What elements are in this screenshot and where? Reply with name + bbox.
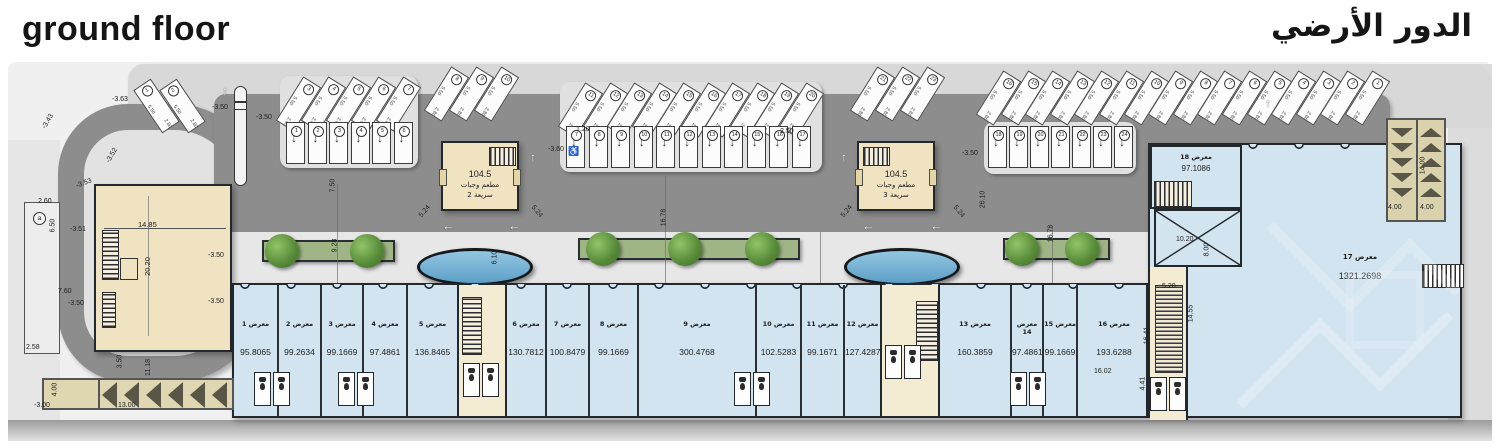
parking-stall: 21↓ bbox=[1051, 126, 1070, 168]
water-feature bbox=[417, 248, 533, 286]
unit-label: معرض 7 bbox=[547, 320, 588, 328]
stall-width-dim: 2.80 bbox=[1277, 110, 1287, 121]
grid-marker: a bbox=[33, 212, 46, 225]
unit-area: 100.8479 bbox=[547, 347, 588, 357]
restaurant-3-building: 104.5 مطعم وجبات سريعة 3 bbox=[857, 141, 935, 211]
stall-number: 4 bbox=[1296, 76, 1311, 91]
void-cross-icon bbox=[1156, 211, 1240, 265]
stall-width-dim: 2.80 bbox=[1080, 110, 1090, 121]
stall-number: 9 bbox=[474, 72, 489, 87]
stall-number: 6 bbox=[1247, 76, 1262, 91]
wc-room bbox=[463, 363, 480, 397]
stall-number: 11 bbox=[583, 88, 598, 103]
direction-arrow-icon: ← bbox=[442, 218, 455, 233]
stall-width-dim: 2.80 bbox=[856, 106, 866, 117]
dimension-line bbox=[337, 184, 338, 283]
direction-arrow-icon: ↑ bbox=[530, 150, 536, 164]
parking-stall: 13↓ bbox=[702, 126, 721, 168]
stall-number: 15 bbox=[681, 88, 696, 103]
direction-arrow-icon: ← bbox=[862, 218, 875, 233]
stall-depth-dim: 5.50 bbox=[1111, 89, 1121, 100]
parking-stall: 10↓ bbox=[634, 126, 653, 168]
handicap-parking-icon: ♿ bbox=[568, 146, 579, 157]
dimension: -3.51 bbox=[70, 226, 86, 233]
wc-pair bbox=[734, 372, 772, 408]
stall-width-dim: 2.80 bbox=[881, 106, 891, 117]
stall-width-dim: 2.80 bbox=[430, 106, 440, 117]
unit-6: معرض 6130.7812 bbox=[507, 285, 547, 416]
dimension: 14.55 bbox=[1187, 305, 1194, 323]
stall-number: 13 bbox=[632, 88, 647, 103]
dimension: 16.78 bbox=[1047, 225, 1054, 243]
stall-width-dim: 2.80 bbox=[480, 106, 490, 117]
direction-arrow-icon: ↑ bbox=[1265, 96, 1271, 110]
stall-arrow-icon: ↓ bbox=[1077, 135, 1083, 149]
stairs-icon bbox=[489, 147, 516, 166]
unit-area: 99.1671 bbox=[802, 347, 843, 357]
stall-arrow-icon: ↓ bbox=[729, 135, 735, 149]
wc-room bbox=[1029, 372, 1046, 406]
parking-stall: 15↓ bbox=[747, 126, 766, 168]
stall-arrow-icon: ↓ bbox=[313, 131, 319, 145]
stall-depth-dim: 5.50 bbox=[570, 101, 580, 112]
dimension: -3.50 bbox=[68, 300, 84, 307]
parking-stall: 23↓ bbox=[1093, 126, 1112, 168]
parking-stall: 3↓ bbox=[329, 122, 348, 164]
stall-number: 5 bbox=[351, 82, 366, 97]
parking-stall: 18↓ bbox=[988, 126, 1007, 168]
stall-number: 5 bbox=[1272, 76, 1287, 91]
dimension: 10.20 bbox=[1176, 236, 1194, 243]
stall-depth-dim: 5.50 bbox=[1209, 89, 1219, 100]
dimension: 2.60 bbox=[38, 198, 52, 205]
unit-label: معرض 9 bbox=[639, 320, 755, 328]
stall-arrow-icon: ↓ bbox=[1014, 135, 1020, 149]
dimension-line bbox=[820, 232, 821, 283]
stall-number: 9 bbox=[1173, 76, 1188, 91]
stall-width-dim: 2.80 bbox=[982, 110, 992, 121]
lane-divider-island bbox=[234, 86, 247, 186]
tree-icon bbox=[745, 232, 779, 266]
wc-pair bbox=[254, 372, 292, 408]
wc-room bbox=[1010, 372, 1027, 406]
stall-number: 7 bbox=[1222, 76, 1237, 91]
unit-label: معرض 12 bbox=[845, 320, 880, 328]
stall-number: 11 bbox=[1124, 76, 1139, 91]
dimension: 3.50 bbox=[116, 355, 123, 369]
stall-depth-dim: 5.50 bbox=[887, 85, 897, 96]
restaurant-area: 104.5 bbox=[443, 169, 517, 179]
dimension: 11.18 bbox=[145, 359, 152, 376]
dimension: 2.50 bbox=[780, 128, 794, 135]
direction-arrow-icon: ↑ bbox=[841, 150, 847, 164]
unit-area: 97.4861 bbox=[364, 347, 406, 357]
stall-number: 1 bbox=[1370, 76, 1385, 91]
stall-depth-dim: 5.50 bbox=[912, 85, 922, 96]
stall-arrow-icon: ↓ bbox=[1056, 135, 1062, 149]
unit-area: 99.2634 bbox=[279, 347, 320, 357]
stall-number: 15 bbox=[1026, 76, 1041, 91]
stall-width-dim: 2.80 bbox=[906, 106, 916, 117]
stall-number: 7 bbox=[401, 82, 416, 97]
restaurant-area: 104.5 bbox=[859, 169, 933, 179]
stair-core-1 bbox=[457, 285, 507, 416]
wc-room bbox=[338, 372, 355, 406]
stall-number: 4 bbox=[326, 82, 341, 97]
parking-stall: 17↓ bbox=[792, 126, 811, 168]
unit-18: معرض 18 97.1086 bbox=[1150, 145, 1242, 209]
dimension: 4.00 bbox=[51, 383, 58, 397]
stair-landing bbox=[120, 258, 138, 280]
parking-stall: 14↓ bbox=[724, 126, 743, 168]
direction-arrow-icon: ← bbox=[508, 218, 521, 233]
stall-number: 2 bbox=[166, 83, 181, 98]
dimension: 6.50 bbox=[49, 219, 56, 233]
stall-depth-dim: 5.50 bbox=[668, 101, 678, 112]
dimension: 8.00 bbox=[1203, 243, 1210, 257]
stall-width-dim: 2.80 bbox=[1105, 110, 1115, 121]
stall-depth-dim: 5.50 bbox=[717, 101, 727, 112]
stall-arrow-icon: ↓ bbox=[639, 135, 645, 149]
parking-stall: 19↓ bbox=[1009, 126, 1028, 168]
page-title-english: ground floor bbox=[22, 10, 230, 49]
parking-stall: 8↓ bbox=[589, 126, 608, 168]
stall-arrow-icon: ↓ bbox=[377, 131, 383, 145]
stall-number: 12 bbox=[1099, 76, 1114, 91]
unit-label: معرض 14 bbox=[1012, 320, 1042, 336]
dimension: 16.41 bbox=[1143, 327, 1150, 345]
restaurant-label: سريعة 3 bbox=[859, 191, 933, 199]
unit-label: معرض 4 bbox=[364, 320, 406, 328]
stall-number: 22 bbox=[900, 72, 915, 87]
dimension: 9.28 bbox=[331, 239, 338, 253]
unit-7: معرض 7100.8479 bbox=[547, 285, 590, 416]
stall-depth-dim: 5.50 bbox=[1160, 89, 1170, 100]
stairs-icon bbox=[462, 297, 482, 355]
stall-number: 1 bbox=[140, 83, 155, 98]
unit-area: 99.1669 bbox=[590, 347, 637, 357]
unit-area: 160.3859 bbox=[940, 347, 1010, 357]
parking-stall: 2↓ bbox=[308, 122, 327, 164]
dimension: 5.20 bbox=[1162, 283, 1176, 290]
stall-depth-dim: 5.50 bbox=[1234, 89, 1244, 100]
stall-depth-dim: 5.50 bbox=[1037, 89, 1047, 100]
stall-depth-dim: 5.50 bbox=[1086, 89, 1096, 100]
parking-stall: 4↓ bbox=[351, 122, 370, 164]
void-shaft bbox=[1154, 209, 1242, 267]
stall-depth-dim: 5.50 bbox=[1283, 89, 1293, 100]
left-building bbox=[94, 184, 232, 352]
stall-number: 16 bbox=[706, 88, 721, 103]
unit-label: معرض 1 bbox=[234, 320, 277, 328]
stall-arrow-icon: ↓ bbox=[1098, 135, 1104, 149]
restaurant-label: سريعة 2 bbox=[443, 191, 517, 199]
parking-stall: 5↓ bbox=[372, 122, 391, 164]
restaurant-2-building: 104.5 مطعم وجبات سريعة 2 bbox=[441, 141, 519, 211]
stall-arrow-icon: ↓ bbox=[291, 131, 297, 145]
stall-width-dim: 2.80 bbox=[1252, 110, 1262, 121]
stall-width-dim: 2.80 bbox=[1056, 110, 1066, 121]
stall-depth-dim: 5.50 bbox=[1357, 89, 1367, 100]
unit-15: معرض 1599.1669 bbox=[1044, 285, 1078, 416]
wc-room bbox=[885, 345, 902, 379]
tree-icon bbox=[586, 232, 620, 266]
unit-11: معرض 1199.1671 bbox=[802, 285, 845, 416]
stall-number: 3 bbox=[301, 82, 316, 97]
ramp-divider bbox=[98, 380, 100, 408]
stall-width-dim: 2.80 bbox=[1351, 110, 1361, 121]
stall-number: 20 bbox=[804, 88, 819, 103]
escalator-icon bbox=[1155, 285, 1183, 373]
restaurant-label: مطعم وجبات bbox=[859, 181, 933, 189]
unit-area: 99.1669 bbox=[1044, 347, 1076, 357]
stall-arrow-icon: ↓ bbox=[616, 135, 622, 149]
dimension: 7.60 bbox=[58, 288, 72, 295]
tree-icon bbox=[265, 234, 299, 268]
stall-arrow-icon: ↓ bbox=[594, 135, 600, 149]
stall-depth-dim: 5.50 bbox=[461, 85, 471, 96]
unit-label: معرض 10 bbox=[757, 320, 800, 328]
stall-arrow-icon: ↓ bbox=[399, 131, 405, 145]
stall-number: 2 bbox=[1345, 76, 1360, 91]
dimension: 16.78 bbox=[660, 209, 667, 227]
stall-width-dim: 2.80 bbox=[1302, 110, 1312, 121]
unit-label: معرض 13 bbox=[940, 320, 1010, 328]
direction-arrow-icon: ↑ bbox=[222, 84, 228, 98]
unit-label: معرض 11 bbox=[802, 320, 843, 328]
dimension: -3.00 bbox=[34, 402, 50, 409]
dimension-line bbox=[104, 228, 226, 229]
parking-stall: 9↓ bbox=[611, 126, 630, 168]
stall-number: 18 bbox=[755, 88, 770, 103]
stall-depth-dim: 5.50 bbox=[486, 85, 496, 96]
stall-number: 21 bbox=[875, 72, 890, 87]
stall-arrow-icon: ↓ bbox=[661, 135, 667, 149]
stall-arrow-icon: ↓ bbox=[752, 135, 758, 149]
wc-pair bbox=[463, 363, 501, 399]
stall-number: 14 bbox=[1050, 76, 1065, 91]
dimension: -3.60 bbox=[548, 146, 564, 153]
stall-arrow-icon: ↓ bbox=[707, 135, 713, 149]
unit-area: 193.6288 bbox=[1078, 347, 1150, 357]
water-feature bbox=[844, 248, 960, 286]
parking-stall: 24↓ bbox=[1114, 126, 1133, 168]
wc-room bbox=[357, 372, 374, 406]
dimension-line bbox=[665, 176, 666, 283]
dimension: 14.00 bbox=[1419, 157, 1426, 175]
unit-area: 99.1669 bbox=[322, 347, 362, 357]
stall-width-dim: 2.80 bbox=[1031, 110, 1041, 121]
unit-area: 97.4861 bbox=[1012, 347, 1042, 357]
stall-arrow-icon: ↓ bbox=[1119, 135, 1125, 149]
wc-room bbox=[482, 363, 499, 397]
wc-room bbox=[753, 372, 770, 406]
dimension: 26.10 bbox=[979, 191, 986, 209]
stall-number: 13 bbox=[1075, 76, 1090, 91]
stall-depth-dim: 5.50 bbox=[1332, 89, 1342, 100]
unit-8: معرض 899.1669 bbox=[590, 285, 639, 416]
bottom-road-band bbox=[8, 420, 1492, 441]
dimension: 20.20 bbox=[143, 257, 152, 276]
stall-width-dim: 2.80 bbox=[1129, 110, 1139, 121]
stall-number: 14 bbox=[657, 88, 672, 103]
wc-pair bbox=[1010, 372, 1048, 408]
unit-label: معرض 8 bbox=[590, 320, 637, 328]
dimension: 4.41 bbox=[1139, 377, 1146, 391]
stall-width-dim: 2.80 bbox=[1179, 110, 1189, 121]
dimension: 1.20 bbox=[576, 126, 590, 133]
stall-depth-dim: 5.50 bbox=[363, 95, 373, 106]
stall-number: 19 bbox=[779, 88, 794, 103]
unit-label: معرض 3 bbox=[322, 320, 362, 328]
unit-area: 136.8465 bbox=[408, 347, 457, 357]
stall-depth-dim: 5.50 bbox=[288, 95, 298, 106]
stall-number: 6 bbox=[376, 82, 391, 97]
stall-arrow-icon: ↓ bbox=[356, 131, 362, 145]
restaurant-label: مطعم وجبات bbox=[443, 181, 517, 189]
unit-area: 95.8065 bbox=[234, 347, 277, 357]
stall-width-dim: 2.80 bbox=[1154, 110, 1164, 121]
stall-width-dim: 2.80 bbox=[455, 106, 465, 117]
vehicle-ramp-left bbox=[42, 378, 234, 410]
stall-number: 10 bbox=[1149, 76, 1164, 91]
wc-room bbox=[734, 372, 751, 406]
tree-icon bbox=[668, 232, 702, 266]
stall-arrow-icon: ↓ bbox=[993, 135, 999, 149]
dimension: 6.10 bbox=[491, 251, 498, 265]
wc-room bbox=[273, 372, 290, 406]
dimension: 13.00 bbox=[118, 402, 136, 409]
unit-label: معرض 15 bbox=[1044, 320, 1076, 328]
dimension: 14.85 bbox=[138, 220, 157, 229]
wc-room bbox=[904, 345, 921, 379]
stall-depth-dim: 5.50 bbox=[338, 95, 348, 106]
stall-number: 10 bbox=[499, 72, 514, 87]
dimension: 2.58 bbox=[26, 344, 40, 351]
parking-stall: 1↓ bbox=[286, 122, 305, 164]
unit-13: معرض 13160.3859 bbox=[940, 285, 1012, 416]
stall-arrow-icon: ↓ bbox=[1035, 135, 1041, 149]
wc-room bbox=[254, 372, 271, 406]
stall-arrow-icon: ↓ bbox=[797, 135, 803, 149]
dimension: 16.02 bbox=[1094, 368, 1112, 375]
wc-room bbox=[1150, 377, 1167, 411]
dimension: -3.50 bbox=[212, 104, 228, 111]
watermark bbox=[1230, 215, 1460, 415]
dimension: -3.50 bbox=[256, 114, 272, 121]
stall-width-dim: 2.80 bbox=[1203, 110, 1213, 121]
parking-stall: 6↓ bbox=[394, 122, 413, 164]
stairs-icon bbox=[102, 292, 116, 328]
wc-pair bbox=[1150, 377, 1188, 413]
wc-pair bbox=[338, 372, 376, 408]
unit-area: 300.4768 bbox=[639, 347, 755, 357]
stairs-icon bbox=[102, 230, 119, 280]
parking-stall: 12↓ bbox=[679, 126, 698, 168]
stall-depth-dim: 5.50 bbox=[766, 101, 776, 112]
tree-icon bbox=[1065, 232, 1099, 266]
unit-area: 102.5283 bbox=[757, 347, 800, 357]
dimension: -3.50 bbox=[208, 252, 224, 259]
dimension: -3.50 bbox=[208, 298, 224, 305]
dimension: 4.00 bbox=[1420, 204, 1434, 211]
parking-stall: 22↓ bbox=[1072, 126, 1091, 168]
stairs-icon bbox=[863, 147, 890, 166]
stall-arrow-icon: ↓ bbox=[334, 131, 340, 145]
stall-arrow-icon: ↓ bbox=[774, 135, 780, 149]
stall-number: 8 bbox=[1198, 76, 1213, 91]
stall-depth-dim: 5.50 bbox=[388, 95, 398, 106]
unit-area: 127.4287 bbox=[845, 347, 880, 357]
stall-width-dim: 2.80 bbox=[1326, 110, 1336, 121]
wc-room bbox=[1169, 377, 1186, 411]
dimension: 7.50 bbox=[329, 179, 336, 193]
stall-width-dim: 2.80 bbox=[1006, 110, 1016, 121]
unit-area: 97.1086 bbox=[1152, 164, 1240, 173]
stall-number: 16 bbox=[1001, 76, 1016, 91]
stall-number: 23 bbox=[925, 72, 940, 87]
parking-stall: 20↓ bbox=[1030, 126, 1049, 168]
tree-icon bbox=[350, 234, 384, 268]
page-title-arabic: الدور الأرضي bbox=[1271, 8, 1472, 44]
stall-number: 3 bbox=[1321, 76, 1336, 91]
unit-label: معرض 5 bbox=[408, 320, 457, 328]
unit-label: معرض 6 bbox=[507, 320, 545, 328]
stall-arrow-icon: ↓ bbox=[684, 135, 690, 149]
dimension: -3.50 bbox=[962, 150, 978, 157]
unit-12: معرض 12127.4287 bbox=[845, 285, 880, 416]
stair-core-2 bbox=[880, 285, 940, 416]
stall-depth-dim: 5.50 bbox=[862, 85, 872, 96]
stall-number: 8 bbox=[449, 72, 464, 87]
unit-label: معرض 16 bbox=[1078, 320, 1150, 328]
unit-16: معرض 16193.6288 bbox=[1078, 285, 1150, 416]
stall-depth-dim: 5.50 bbox=[619, 101, 629, 112]
parking-stall: 11↓ bbox=[656, 126, 675, 168]
wc-pair bbox=[885, 345, 923, 381]
stall-depth-dim: 5.50 bbox=[988, 89, 998, 100]
stall-depth-dim: 5.50 bbox=[436, 85, 446, 96]
floor-plan-canvas: ground floor الدور الأرضي 15.502.8025.50… bbox=[0, 0, 1500, 448]
dimension: -3.63 bbox=[112, 96, 128, 103]
stall-number: 17 bbox=[730, 88, 745, 103]
stall-depth-dim: 5.50 bbox=[313, 95, 323, 106]
stall-number: 12 bbox=[608, 88, 623, 103]
unit-label: معرض 18 bbox=[1152, 153, 1240, 161]
stall-width-dim: 2.80 bbox=[1228, 110, 1238, 121]
unit-area: 130.7812 bbox=[507, 347, 545, 357]
stairs-icon bbox=[1154, 181, 1192, 207]
direction-arrow-icon: ← bbox=[930, 218, 943, 233]
unit-5: معرض 5136.8465 bbox=[408, 285, 457, 416]
dimension: 4.00 bbox=[1388, 204, 1402, 211]
unit-label: معرض 2 bbox=[279, 320, 320, 328]
tree-icon bbox=[1005, 232, 1039, 266]
